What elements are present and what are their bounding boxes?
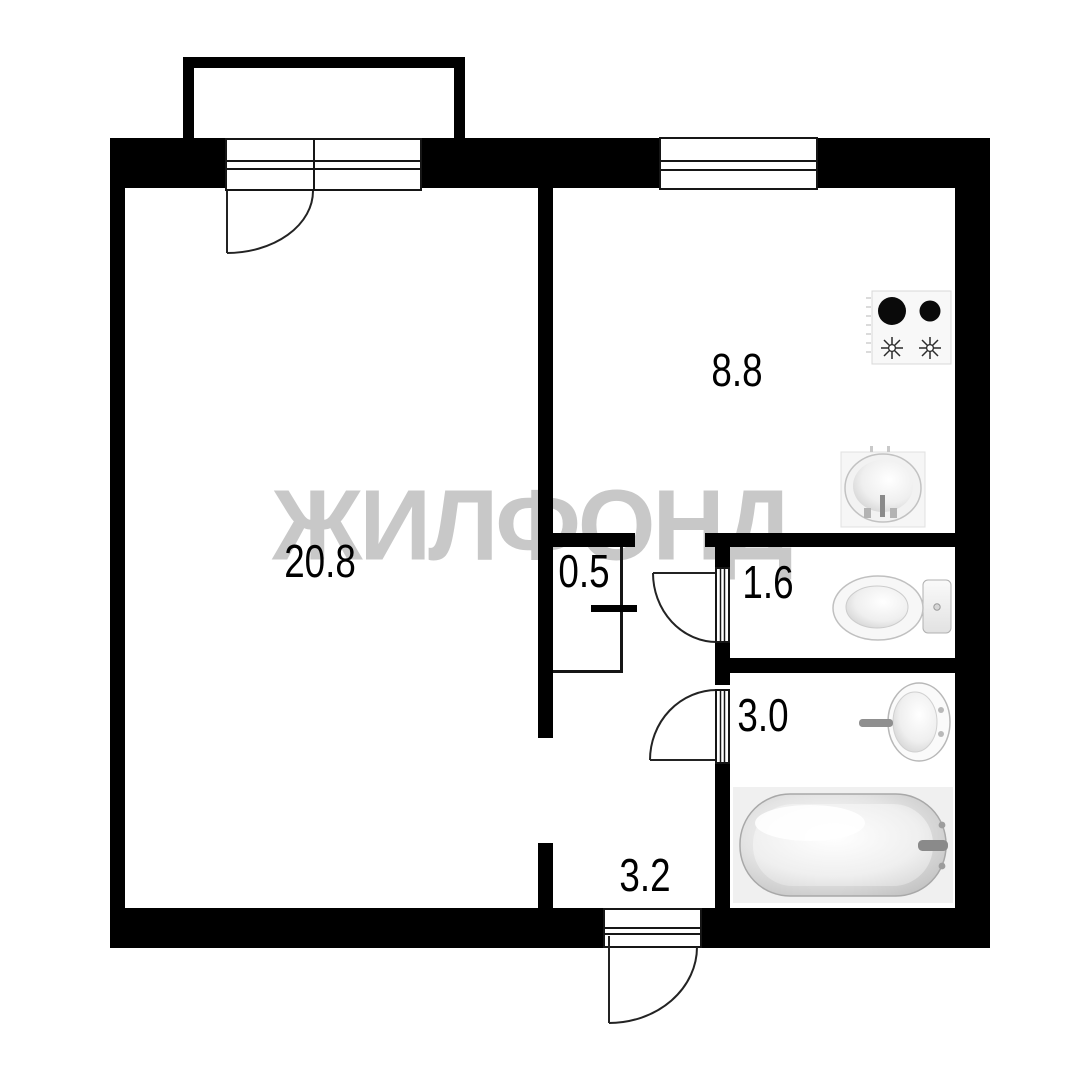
sill-line (605, 933, 700, 935)
wall-column-c (715, 763, 730, 908)
wall-balcony-right (454, 68, 465, 138)
window-line (227, 168, 420, 170)
wall-bottom-right (702, 908, 990, 948)
wall-wc-top (730, 533, 955, 547)
kitchen-window (659, 137, 818, 190)
wall-top-mid (422, 138, 659, 188)
entrance-door-sill (603, 908, 702, 948)
wall-column-a (715, 547, 730, 567)
room-label-living: 20.8 (284, 534, 356, 588)
floor-plan: ЖИЛФОНД (0, 0, 1086, 1080)
closet-bottom-line (553, 670, 623, 673)
room-label-closet: 0.5 (558, 544, 609, 598)
wall-wc-bath (730, 658, 955, 673)
bathroom-door (650, 690, 729, 763)
wall-right (955, 188, 990, 948)
room-label-hallway: 3.2 (619, 848, 670, 902)
closet-door-line (591, 605, 637, 612)
living-room-window (225, 138, 422, 191)
window-divider (313, 140, 315, 189)
entrance-door (609, 936, 697, 1023)
wall-top-left (110, 138, 225, 188)
window-line (661, 169, 816, 171)
window-line (661, 160, 816, 162)
wall-divider-upper (538, 188, 553, 738)
stove-icon (866, 291, 951, 364)
bathtub-icon (733, 787, 953, 903)
room-label-wc: 1.6 (742, 555, 793, 609)
sill-line (605, 927, 700, 929)
wall-left (110, 188, 125, 948)
wall-balcony-left (183, 68, 194, 138)
wall-top-right (818, 138, 990, 188)
sink-icon (841, 446, 925, 527)
balcony-door (227, 191, 313, 253)
room-label-kitchen: 8.8 (711, 343, 762, 397)
toilet-icon (833, 576, 951, 640)
washbasin-icon (859, 683, 950, 761)
window-line (227, 160, 420, 162)
wall-bottom-left (110, 908, 603, 948)
wall-column-b (715, 643, 730, 685)
wall-balcony-top (183, 57, 465, 68)
wall-divider-stub (538, 843, 553, 908)
room-label-bathroom: 3.0 (737, 688, 788, 742)
